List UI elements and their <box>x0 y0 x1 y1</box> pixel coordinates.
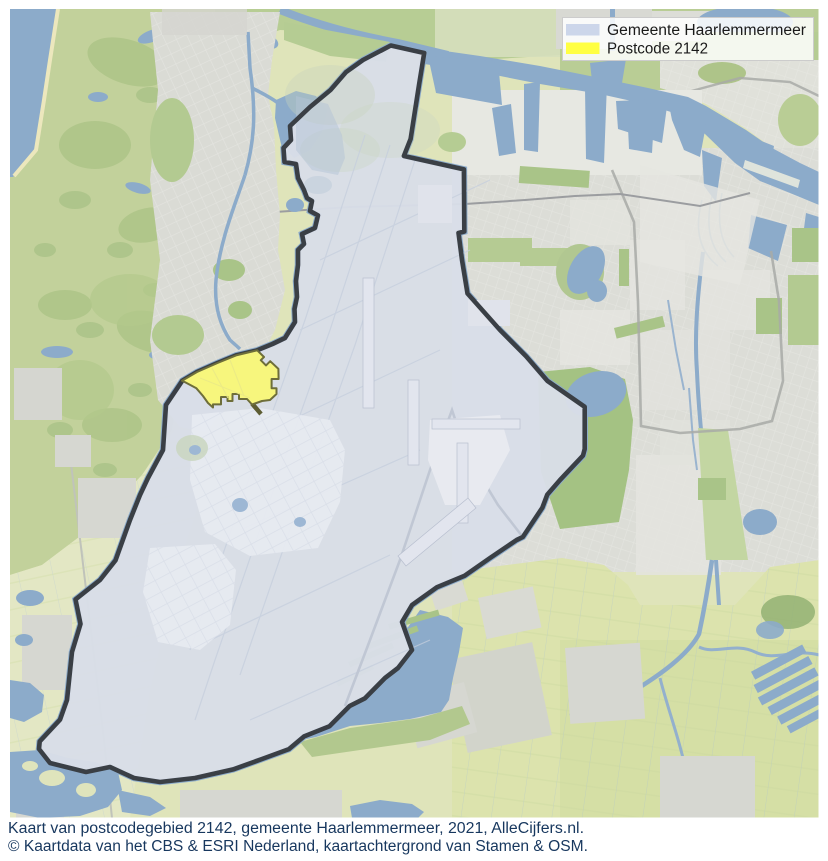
svg-text:Kaart van postcodegebied 2142,: Kaart van postcodegebied 2142, gemeente … <box>8 820 584 837</box>
svg-text:© Kaartdata van het CBS & ESRI: © Kaartdata van het CBS & ESRI Nederland… <box>8 838 588 855</box>
svg-text:Gemeente Haarlemmermeer: Gemeente Haarlemmermeer <box>607 22 806 39</box>
svg-text:Postcode 2142: Postcode 2142 <box>607 41 708 58</box>
